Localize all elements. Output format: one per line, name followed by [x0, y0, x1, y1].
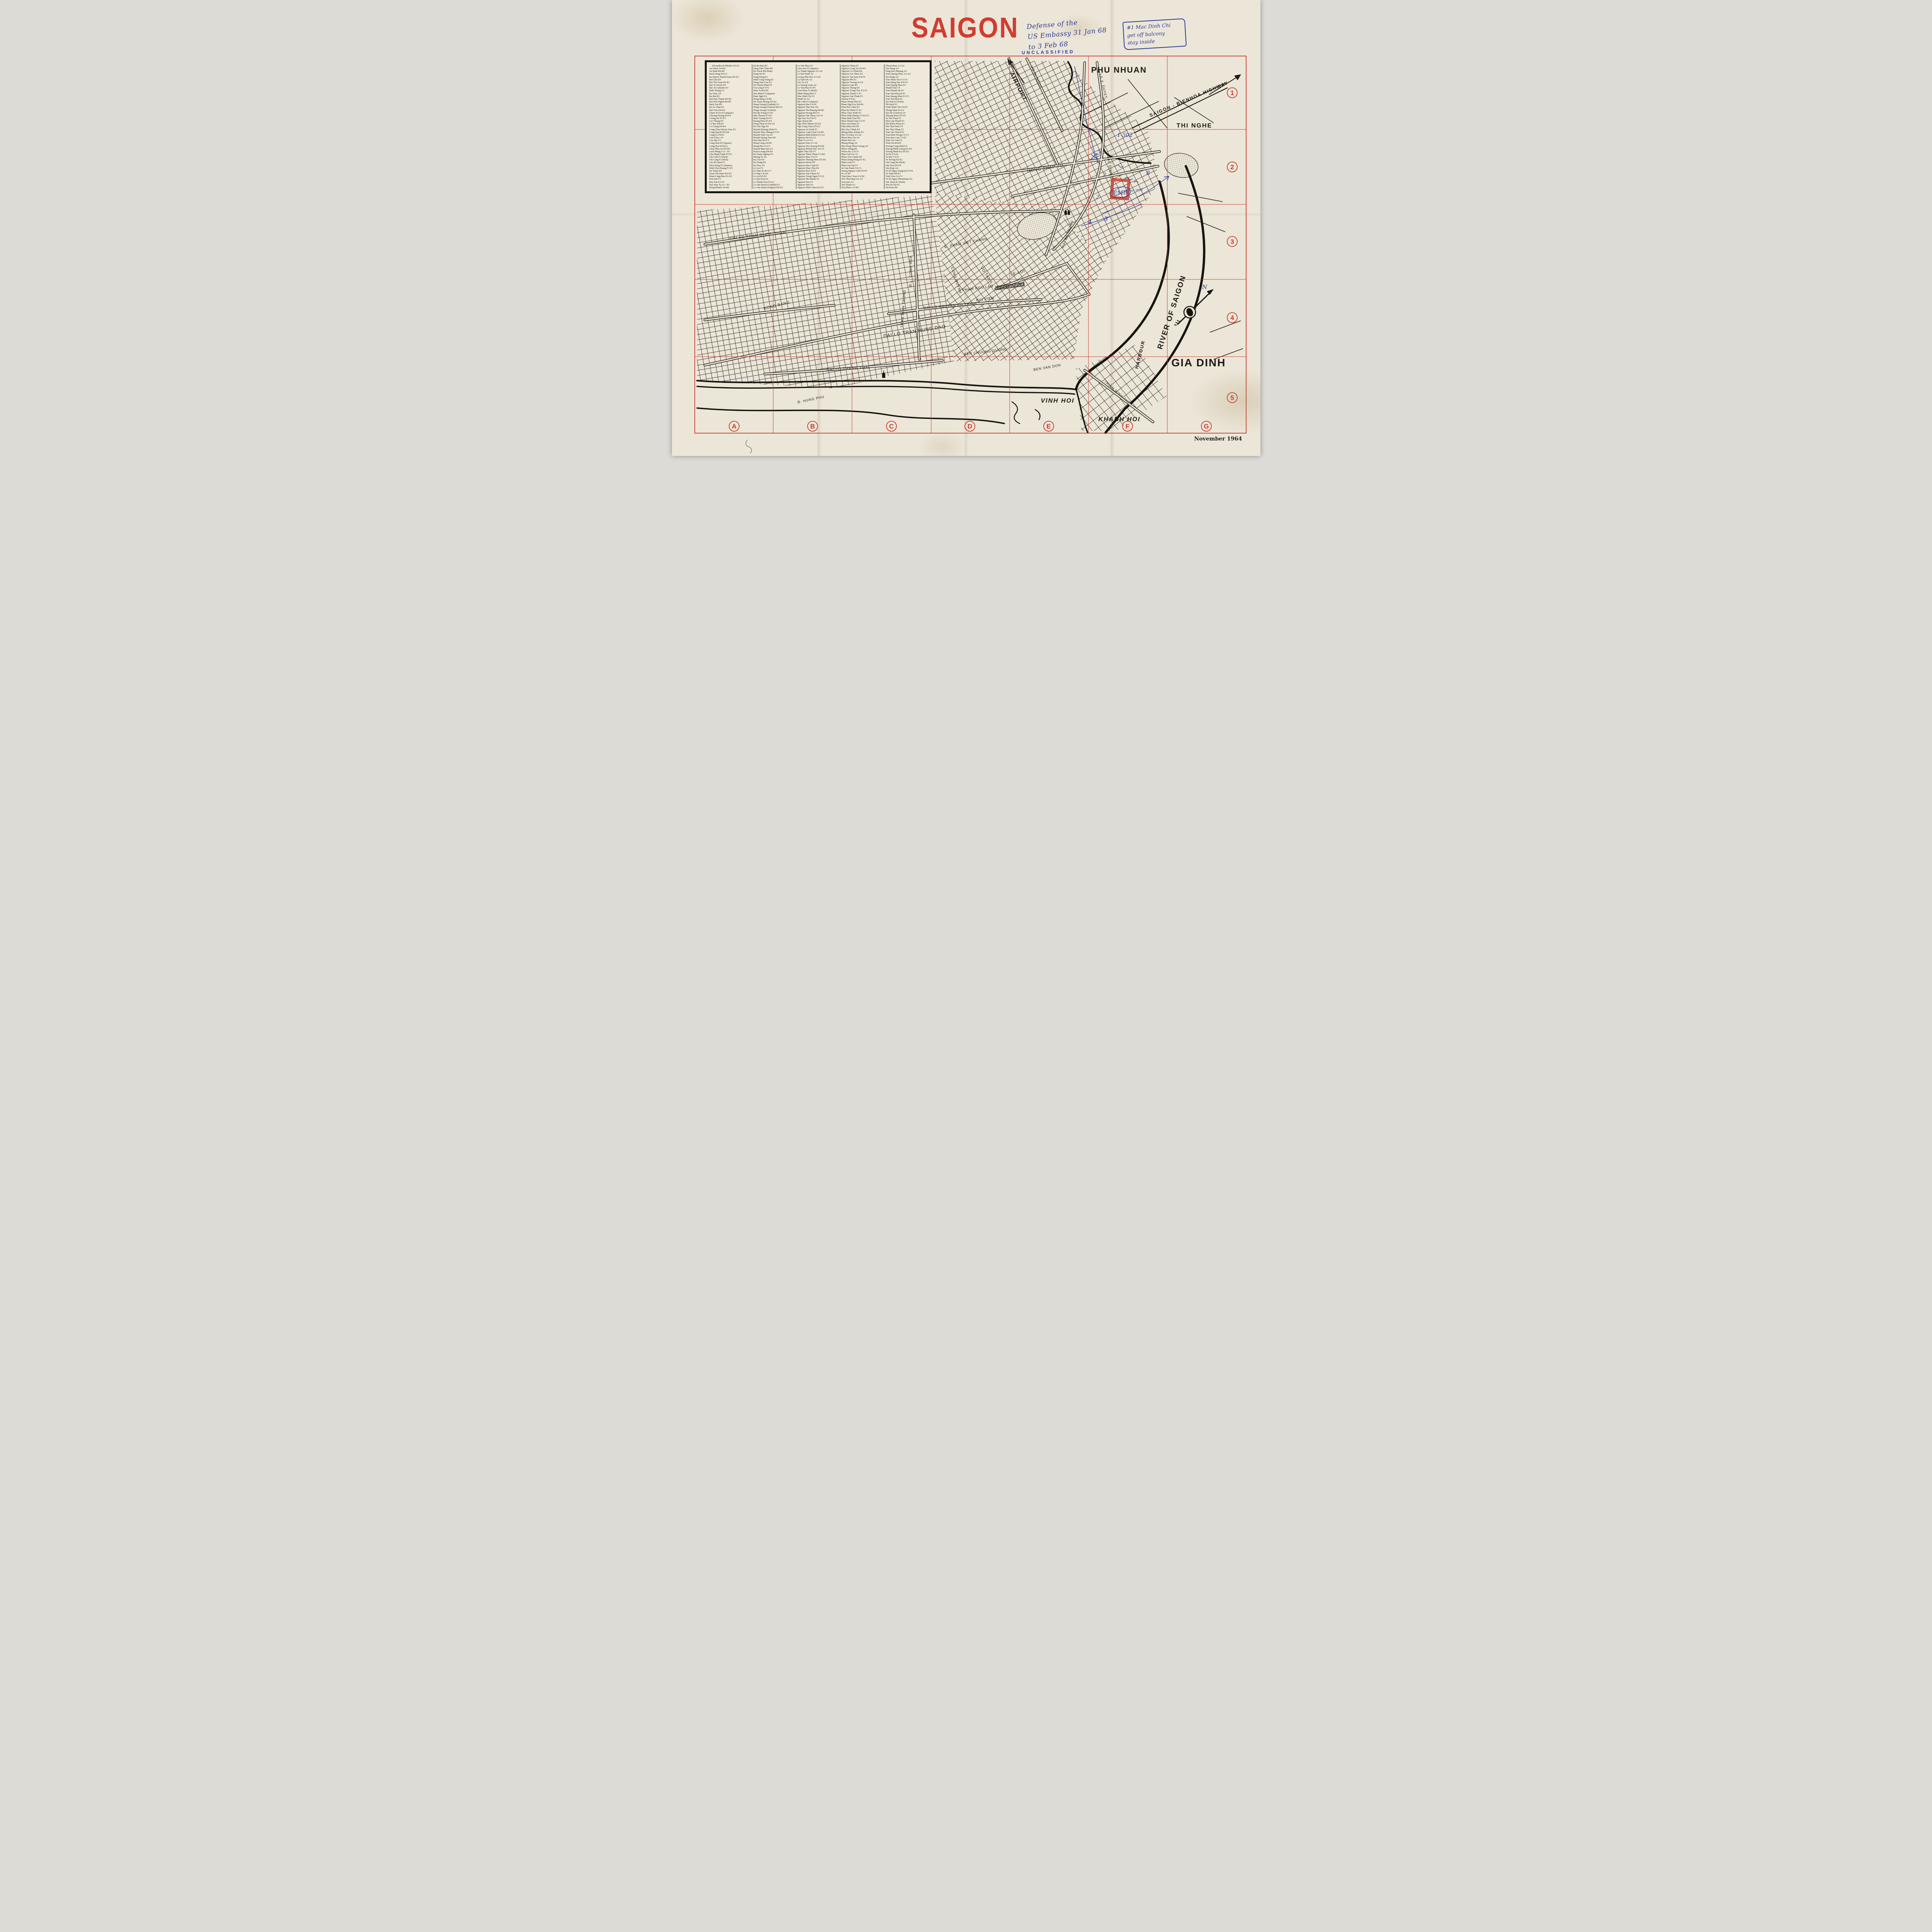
- index-entry: Le Van Duyet (Giadinh) F1: [753, 184, 795, 186]
- index-entry: Phan Ke Binh F1-F2: [842, 109, 883, 112]
- highway-label: SAIGON - BIENHOA HIGHWAY: [1148, 80, 1229, 118]
- index-entry: Phan Van Dat F3: [842, 164, 883, 167]
- district-label-khanh-hoi: KHANH HOI: [1098, 416, 1140, 423]
- index-entry: Ton That Hiep A2-A3: [842, 178, 883, 180]
- index-entry: Thuan Kieu A3-A4: [886, 65, 927, 67]
- district-label-vinh-hoi: VINH HOI: [1041, 398, 1074, 404]
- index-entry: Nguyen Lam B3: [842, 84, 883, 87]
- index-entry: Dang Tat E1: [753, 73, 795, 75]
- index-entry: Ly Thai To B3-C3: [753, 170, 795, 172]
- index-entry: Hung Vuong (Cholon) B4-C4: [753, 106, 795, 109]
- index-entry: Ba Le Chan E1: [709, 106, 751, 109]
- index-entry: Minh Mang B4-C3: [798, 92, 839, 95]
- index-entry: Le Thanh Ton F3-G2: [753, 181, 795, 184]
- index-entry: Pham Ngu Lao D4-E4: [842, 103, 883, 106]
- index-entry: Pham Dang Hung E1-E2: [842, 158, 883, 161]
- index-entry: Le Loi F3: [753, 167, 795, 170]
- index-entry: Phung Hung A4: [842, 142, 883, 145]
- index-entry: Nguyen Trung Truc E3-F3: [842, 89, 883, 92]
- index-entry: Huynh Tinh Cua E1: [753, 134, 795, 136]
- map-title: SAIGON: [912, 13, 1019, 42]
- street-label-hung-phu: Đ. HUNG PHU: [797, 395, 825, 404]
- index-entry: Suong Nguyet Anh D3-E3: [842, 170, 883, 172]
- index-entry: Mac Dinh Chi F2: [798, 95, 839, 98]
- index-entry: Nguyen Van Thinh F3: [842, 95, 883, 98]
- index-entry: Chien Si E2-F2 (Square): [709, 112, 751, 114]
- index-entry: Ngo Quyen B4: [798, 120, 839, 122]
- index-entry: Chua Phat An D4-D5: [709, 148, 751, 150]
- grid-letter-a: A: [731, 423, 736, 430]
- index-entry: Hong Bang A4-B4: [753, 98, 795, 100]
- map-sheet: A B C D E F G 1 2 3 4 5 PHU NHUAN THI NG…: [672, 0, 1260, 456]
- index-entry: Nguyen Phi E3: [842, 78, 883, 81]
- index-entry: Pham Don A4: [842, 139, 883, 142]
- index-entry: Ham Nghi F4: [753, 95, 795, 98]
- index-entry: Co Giang D4-E4: [709, 125, 751, 128]
- index-entry: Co Bac D4-E4: [709, 122, 751, 125]
- grid-letter-f: F: [1125, 423, 1129, 430]
- street-label-ben-van-don: BEN VAN DON: [1033, 363, 1061, 372]
- index-entry: Le Qui Don E2: [753, 178, 795, 180]
- index-entry: Lao Tu A4: [798, 81, 839, 84]
- index-entry: Pham Hong Thai E3: [842, 100, 883, 103]
- index-entry: Nguyen Hoang B4-C4: [798, 112, 839, 114]
- index-entry: Thong Nhat E3-G2: [886, 109, 927, 112]
- index-entry: Truong Minh Giang E2-D1: [886, 148, 927, 150]
- index-entry: Thuong Khau F5-G5: [886, 114, 927, 117]
- index-entry: Dinh Tien Hoang F1-F2: [709, 167, 751, 170]
- index-entry: Nguyen Cu Trinh D4: [842, 70, 883, 73]
- grid-number-1: 1: [1230, 89, 1234, 97]
- index-entry: Alexandre de Rhodes E3-F2: [709, 65, 751, 67]
- index-entry: Nguyen Thi Phuong B4-B3: [798, 109, 839, 112]
- index-entry: Huynh Thuc Khang E3-F3: [753, 131, 795, 134]
- grid-number-2: 2: [1230, 163, 1234, 171]
- index-entry: Ba Hat B3: [709, 95, 751, 98]
- index-entry: Tao Dan E3 (Park): [886, 100, 927, 103]
- index-entry: Chi Linh F3 (Park): [709, 156, 751, 158]
- index-entry: Thanh Thai C4: [886, 87, 927, 89]
- index-entry: Nhan Vi A3-C4: [798, 139, 839, 142]
- index-entry: Ho Huan Nghiep F3: [753, 153, 795, 156]
- index-entry: Tan Hang A4: [886, 76, 927, 78]
- index-entry: Binh Thang A3: [709, 89, 751, 92]
- index-entry: Le Van Huu F2-F3: [798, 87, 839, 89]
- index-entry: Vo Di Nguy (Saigon) F3-F4: [886, 170, 927, 172]
- ink-digit: 2: [1096, 194, 1099, 200]
- index-entry: Nguyen Hau F3: [798, 181, 839, 184]
- index-entry: Hong Thap Tu D3-G2: [753, 122, 795, 125]
- index-entry: Van Don D5-F4: [886, 164, 927, 167]
- index-entry: Dong Khanh A4-B4: [709, 186, 751, 189]
- index-entry: Nguyen Bieu C4-C5: [798, 156, 839, 158]
- index-entry: Pham Huu Chi A4: [842, 136, 883, 139]
- index-entry: Phan Liem F1: [842, 161, 883, 164]
- index-entry: Hung Vuong C4 (Park): [753, 109, 795, 112]
- index-entry: Nguyen Du E3-G2: [798, 136, 839, 139]
- index-column-1: Alexandre de Rhodes E3-F2An Diem A4-B4An…: [708, 65, 752, 189]
- index-entry: Bui Vien D4-E4: [709, 109, 751, 112]
- grid-letter-d: D: [967, 423, 972, 430]
- index-entry: Tran Quang Dieu D1: [886, 84, 927, 87]
- index-entry: Huynh Quang Tien D4: [753, 136, 795, 139]
- index-column-5: Thuan Kieu A3-A4Tan Hung A4Tong Doc Phuo…: [884, 65, 928, 189]
- index-entry: Nguyen Khac Nhu E4: [798, 167, 839, 170]
- index-entry: Le Dai Hanh A3: [798, 73, 839, 75]
- index-entry: Ngo Duc Ke F4-F3: [798, 117, 839, 120]
- index-entry: Tong Doc Phuong A4: [886, 70, 927, 73]
- index-entry: Nguyen Kim A3-A4: [798, 142, 839, 145]
- index-entry: Phuoc Hung B4: [842, 148, 883, 150]
- index-entry: Nguyen Gia Thieu E2: [842, 73, 883, 75]
- index-entry: Nguyen Truong To F4: [842, 81, 883, 84]
- index-entry: Van Lang B4 (Park): [886, 161, 927, 164]
- index-entry: Van Xuan E2 (Park): [886, 181, 927, 184]
- map-date: November 1964: [1194, 436, 1242, 442]
- index-entry: Vo Tanh D4-E3: [886, 172, 927, 175]
- index-entry: Da Trach B4 (Park): [753, 70, 795, 73]
- index-entry: Nguyen An Ninh E3: [798, 128, 839, 131]
- index-entry: Thai Lap Thanh F3: [886, 120, 927, 122]
- grid-letter-b: B: [810, 423, 815, 430]
- index-entry: Phat Diem D4-D5: [842, 125, 883, 128]
- index-entry: Phan Thanh Gian C3-F1: [842, 120, 883, 122]
- index-entry: Tran Quy Cap C3-E2: [886, 136, 927, 139]
- index-entry: Luong Nhu Hoc A3-A4: [798, 76, 839, 78]
- index-entry: Cao Thang D3: [709, 120, 751, 122]
- index-entry: Bui Thi Xuan D3-E3: [709, 81, 751, 84]
- index-entry: Nguyen Sieu F3: [798, 184, 839, 186]
- index-entry: Bui Chu D3: [709, 78, 751, 81]
- ink-digit: 8: [1146, 170, 1150, 176]
- index-entry: Tran Qui Khoach E1: [886, 92, 927, 95]
- index-entry: Nguyen Van Chiem F2: [798, 172, 839, 175]
- index-entry: Phu Dong Thien Vuong A4: [842, 145, 883, 148]
- index-entry: Bach Dang F4-G3: [709, 73, 751, 75]
- index-entry: Cong Ly F4-E1: [709, 134, 751, 136]
- index-entry: Tran Quang Khai E1-F1: [886, 95, 927, 98]
- index-column-4: Nguyen Thiep F3Nguyen Cong Tru E4-F4Nguy…: [840, 65, 884, 189]
- index-entry: Hien Vuong D2-F1: [753, 117, 795, 120]
- index-entry: Yet Kieu B4: [886, 186, 927, 189]
- index-entry: Pham Viet Chanh D3: [842, 156, 883, 158]
- index-entry: Tan Thanh A3: [842, 184, 883, 186]
- index-entry: Pho Co Dieu A3-A4: [842, 134, 883, 136]
- index-entry: Do Thanh Nhan F5: [753, 84, 795, 87]
- index-entry: De Tham E4: [709, 170, 751, 172]
- index-entry: Hoan Luong D4-E4: [753, 150, 795, 153]
- index-entry: Tran Binh Trong C5-C3: [886, 134, 927, 136]
- index-entry: Phan Dinh Phung C3-E2-G1: [842, 114, 883, 117]
- ink-digit: 2: [1103, 172, 1106, 178]
- index-entry: Tan Hung A4: [886, 67, 927, 70]
- index-entry: Bach Van B5: [709, 103, 751, 106]
- index-entry: Hai Ba Trung F3-E1: [753, 112, 795, 114]
- index-entry: An Diem A4-B4: [709, 67, 751, 70]
- index-entry: Yen Do D2-E1: [886, 184, 927, 186]
- grid-number-5: 5: [1230, 394, 1234, 401]
- index-entry: Vinh Vien A3-C3: [886, 175, 927, 178]
- index-entry: Tran Qui A3: [842, 181, 883, 184]
- index-entry: Doan Thi Diem D2-E3: [709, 172, 751, 175]
- index-entry: Petrus-Ky C3-C4: [842, 150, 883, 153]
- index-entry: Ho Xuan Huong D3-E2: [753, 100, 795, 103]
- district-label-phu-nhuan: PHU NHUAN: [1091, 66, 1147, 75]
- index-entry: Thu Khoa Huan E3: [886, 122, 927, 125]
- index-entry: Duy Tan E2-F2: [709, 181, 751, 184]
- index-entry: Dien Hong E3 (Square): [709, 164, 751, 167]
- index-entry: Huynh Man Dat C4: [753, 148, 795, 150]
- grid-number-3: 3: [1230, 238, 1234, 245]
- index-entry: Phan Van Tri C4: [842, 153, 883, 156]
- index-entry: Manh Tu A3: [798, 98, 839, 100]
- ink-note-code: 1-502: [1117, 132, 1133, 138]
- grid-letter-e: E: [1046, 423, 1051, 430]
- index-entry: Nguyen Thiep F3: [842, 65, 883, 67]
- index-entry: Trinh Minh The F4-F5: [886, 106, 927, 109]
- index-column-2: Da Ba Bau B3Dang Thai Than B4Da Trach B4…: [752, 65, 796, 189]
- index-entry: Ham Tu B4-D5: [753, 89, 795, 92]
- index-entry: Ky Dong D2: [753, 161, 795, 164]
- index-entry: Hoang Dieu F5-F4: [753, 120, 795, 122]
- index-entry: Cong Hoa D3 (Square): [709, 142, 751, 145]
- index-entry: So 21 B3: [842, 172, 883, 175]
- index-entry: Nguyen Huy Tu F1: [798, 170, 839, 172]
- index-entry: Han Thuyen F3-F3: [753, 114, 795, 117]
- index-entry: Thi Sach F3: [886, 103, 927, 106]
- index-entry: Le Quang Liem A4: [798, 84, 839, 87]
- index-entry: Hoa Hao B3-C3: [753, 139, 795, 142]
- index-entry: Tan Da (Cholon) A4: [886, 112, 927, 114]
- index-entry: Gia Long F3-F3: [753, 87, 795, 89]
- index-entry: Nguyen Phi Khanh F1: [798, 178, 839, 180]
- index-entry: Le Ngo Cat D2: [753, 172, 795, 175]
- grid-letter-c: C: [889, 423, 893, 430]
- index-entry: Ho Van Nga E4: [753, 125, 795, 128]
- index-entry: Tu Duc F2-F1: [886, 156, 927, 158]
- index-entry: Hoa Binh F3 (Square): [753, 92, 795, 95]
- index-entry: Doan Cong Buu E1-E2: [709, 175, 751, 178]
- index-entry: Nguyen Binh Khiem F1-G2: [798, 134, 839, 136]
- index-entry: Nguyen Huu Canh E1: [798, 164, 839, 167]
- index-entry: Truong Cong Dinh E3: [886, 145, 927, 148]
- index-entry: Truong Minh Ky D3-E3: [886, 150, 927, 153]
- index-entry: Cong Hoa D4 (St.): [709, 145, 751, 148]
- index-entry: Ly Thanh Nguyen A3-A4: [798, 70, 839, 73]
- street-label-cong-hoa: Đ.L. CONG HOA: [908, 255, 913, 287]
- index-entry: Nguyen Dinh Chieu E2-E1: [798, 186, 839, 189]
- index-entry: Chuong Duong E4-F4: [709, 114, 751, 117]
- classification-note: UNCLASSIFIED: [1021, 49, 1074, 55]
- index-entry: Tran Hung Dao E4-C4: [886, 81, 927, 84]
- index-entry: Ta Thu Thau F3: [886, 117, 927, 120]
- index-entry: Lien Hiep F3 (Park): [798, 89, 839, 92]
- index-entry: Nguyen Thien Thuat C3-D4: [798, 153, 839, 156]
- index-entry: Tran Nhan Ton C3-C4: [886, 78, 927, 81]
- index-entry: Hung Vuong (Giadinh) G1: [753, 103, 795, 106]
- index-entry: Cong Quynh D3-D4: [709, 131, 751, 134]
- index-entry: Trieu Quang Phuc A3-A4: [886, 73, 927, 75]
- district-label-thi-nghe: THI NGHE: [1176, 122, 1212, 129]
- index-entry: Trieu Da B4-B3: [886, 142, 927, 145]
- index-entry: Ky Con E4: [753, 158, 795, 161]
- street-index: Alexandre de Rhodes E3-F2An Diem A4-B4An…: [705, 60, 932, 193]
- index-entry: Pho Duc Chinh E4: [842, 128, 883, 131]
- district-label-gia-dinh: GIA DINH: [1171, 357, 1226, 369]
- index-entry: Nguyen Thanh Y F2: [842, 92, 883, 95]
- index-entry: Tu Xuong D2-E2: [886, 158, 927, 161]
- index-entry: Dinh Cong Trang E1: [753, 78, 795, 81]
- index-entry: Tu Do F3-F4: [886, 153, 927, 156]
- index-entry: Bui Duy Thanh B4-B5: [709, 98, 751, 100]
- grid-letter-g: G: [1204, 423, 1209, 430]
- index-entry: Dang Tran Con E3: [753, 81, 795, 84]
- index-entry: Cach Mang I-11 - D1: [709, 150, 751, 153]
- index-entry: Dao Duy Tu A3 - B3: [709, 184, 751, 186]
- index-entry: Cao Dat C5: [709, 139, 751, 142]
- ink-digit: 5: [1104, 215, 1108, 223]
- index-entry: Tran Khanh Du E1: [886, 89, 927, 92]
- index-entry: Le Van Duyet (Saigon) D2-E3: [753, 186, 795, 189]
- index-entry: Tran Van Thach E1: [886, 131, 927, 134]
- index-entry: Khong Tu A4: [753, 156, 795, 158]
- index-entry: Van Kiep A4: [886, 167, 927, 170]
- index-entry: Bac Si Calmette E4: [709, 87, 751, 89]
- index-entry: Can Giuoc A5: [709, 136, 751, 139]
- index-entry: Nguyen Thai Hoc E4: [798, 106, 839, 109]
- index-entry: Dang Dung E1: [753, 76, 795, 78]
- index-entry: Nguyen Thuong Hien D2-D3: [798, 158, 839, 161]
- index-entry: Ton That Thiep F3: [886, 128, 927, 131]
- index-entry: Nguyen Hue F3-F4: [798, 103, 839, 106]
- index-entry: Phan Boi Chau E3: [842, 106, 883, 109]
- index-entry: Ky Hoa A4: [753, 164, 795, 167]
- index-entry: Ly Van Phuc F1: [798, 65, 839, 67]
- compass-north-label: N: [1202, 284, 1207, 291]
- index-entry: Nguyen Thong D2: [842, 87, 883, 89]
- index-entry: Hung Phu A5-C5: [753, 145, 795, 148]
- index-entry: Ton That Dam F4: [886, 125, 927, 128]
- index-entry: Chi Lang F3 (Park): [709, 158, 751, 161]
- index-entry: Tran Quoc Toan A3-D2: [842, 175, 883, 178]
- index-entry: An Binh B4-B5: [709, 70, 751, 73]
- index-entry: Tan Phuoc A3-B3: [842, 186, 883, 189]
- index-entry: Ngo Thoi Nhiem D2-E2: [798, 122, 839, 125]
- pencil-mark: [746, 440, 752, 453]
- index-entry: Nguyen Van Sam E4-F4: [842, 76, 883, 78]
- index-entry: Lam Son F3 (Square): [798, 67, 839, 70]
- index-entry: Ly Nam De A3: [798, 78, 839, 81]
- index-entry: Bac Si Yersin E4: [709, 84, 751, 87]
- index-entry: Dang Thai Than B4: [753, 67, 795, 70]
- index-entry: Nguyen Huynh Duc A4-A5: [798, 148, 839, 150]
- index-entry: Cao Ba Quat F3: [709, 161, 751, 164]
- index-entry: Vo Di Nguy (Phunhuan) E1: [886, 178, 927, 180]
- index-entry: Me Linh F3 (Square): [798, 100, 839, 103]
- index-entry: Nguyen Cong Tru E4-F4: [842, 67, 883, 70]
- index-entry: Pasteur F4-E1: [842, 98, 883, 100]
- index-entry: Ba Huyen Thanh Quan D2-E3: [709, 76, 751, 78]
- index-entry: Tran Cao Van F2: [886, 139, 927, 142]
- index-entry: Nguyen Trung Ngan F3-G2: [798, 175, 839, 178]
- index-entry: Phung Khac Khoan F2: [842, 131, 883, 134]
- index-entry: Chu Manh Trinh F2-F3: [709, 153, 751, 156]
- grid-number-4: 4: [1230, 314, 1234, 321]
- index-entry: Nguyen Canh Chan C4-D5: [798, 131, 839, 134]
- index-entry: Cong Chua Huyen Tran E3: [709, 128, 751, 131]
- index-entry: Bui Huu Nghia B4-B5: [709, 100, 751, 103]
- index-entry: Huynh Khuong Ninh F1: [753, 128, 795, 131]
- index-entry: Da Ba Bau B3: [753, 65, 795, 67]
- index-entry: Phan Van Hum E3: [842, 122, 883, 125]
- ink-digit: 3: [1097, 149, 1101, 156]
- index-entry: Su Van Hanh C4-C3: [842, 167, 883, 170]
- ink-digit: 4: [1087, 218, 1092, 226]
- index-entry: Don Dat F3: [709, 178, 751, 180]
- index-column-3: Ly Van Phuc F1Lam Son F3 (Square)Ly Than…: [796, 65, 840, 189]
- index-entry: Phan Dinh Toai D2: [842, 117, 883, 120]
- handwritten-corner-note: #1 Mac Dinh Chi get off balcony stay ins…: [1122, 18, 1186, 50]
- index-entry: Hung Long A4-B4: [753, 142, 795, 145]
- index-entry: Nguyen Van Thoai A4-A3: [798, 114, 839, 117]
- index-entry: Le Lai D3-E3: [753, 175, 795, 178]
- index-entry: Cuong De F2-F3: [709, 117, 751, 120]
- index-entry: Nguyen Duy Duong B3-B4: [798, 145, 839, 148]
- index-entry: Ngo Tung Chau D3-E3: [798, 125, 839, 128]
- index-entry: Phan Chau Trinh E3: [842, 112, 883, 114]
- index-entry: Nghia Thuc B5-C5: [798, 150, 839, 153]
- index-entry: Nguyen Khoai D5: [798, 161, 839, 164]
- index-entry: Tran Tan Phat E2: [886, 98, 927, 100]
- index-entry: Ba Trieu A4: [709, 92, 751, 95]
